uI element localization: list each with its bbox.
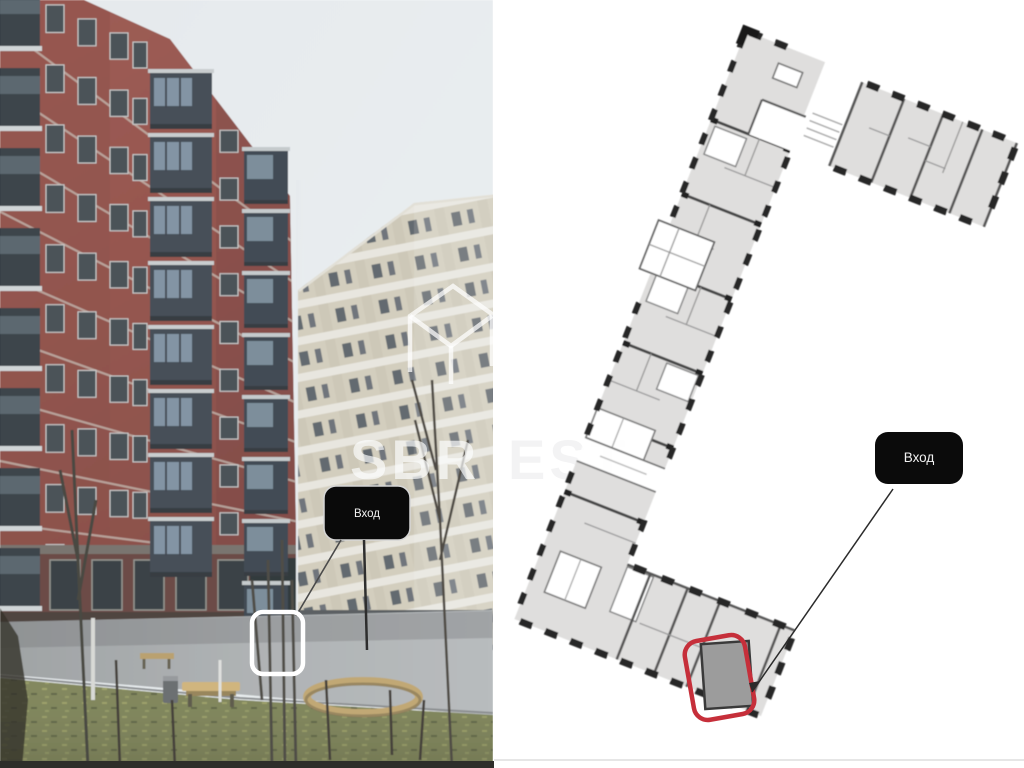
svg-text:Вход: Вход <box>354 508 380 520</box>
svg-text:Вход: Вход <box>904 450 935 465</box>
svg-text:SBR: SBR <box>350 428 480 491</box>
